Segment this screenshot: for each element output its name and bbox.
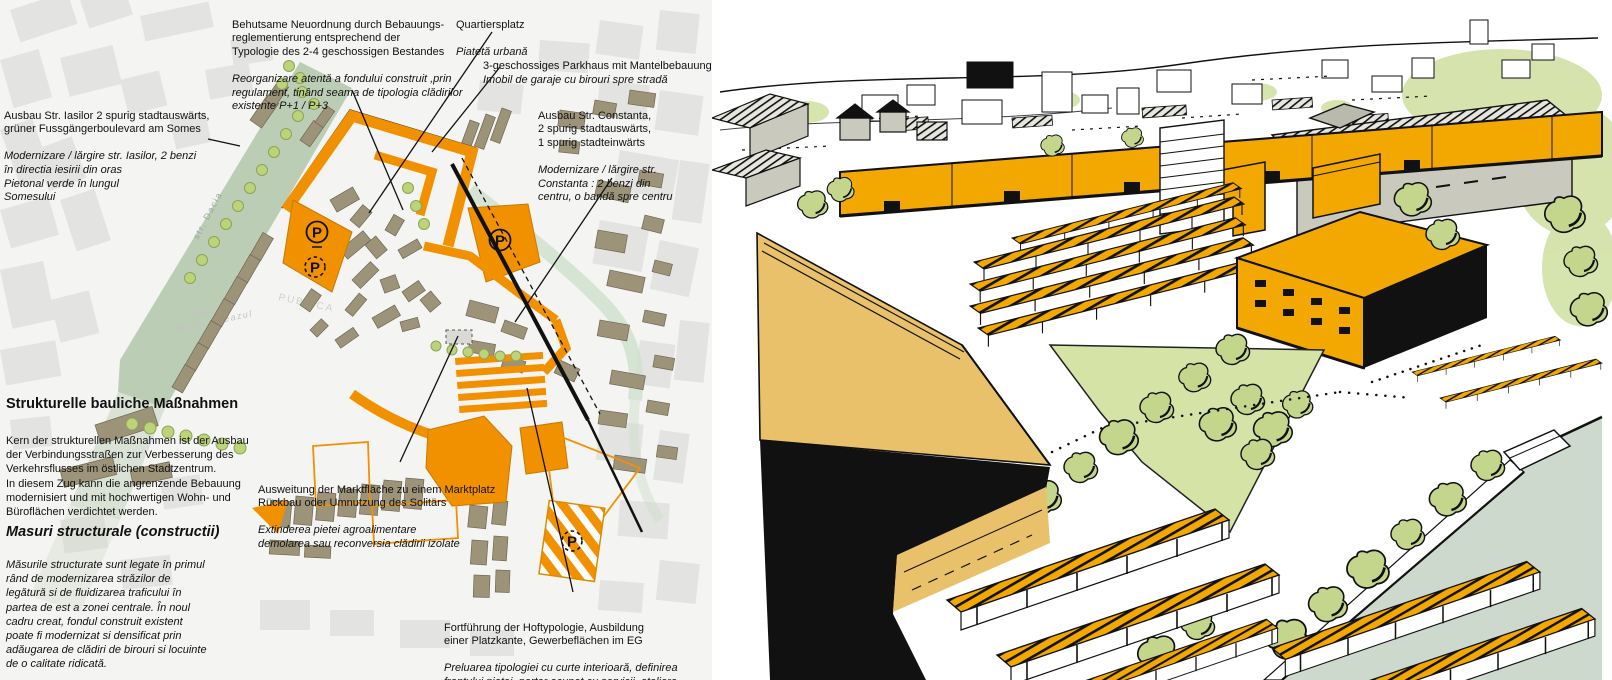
map-panel: str. Dacia piata Mihai Viteazul PUBLICA [0, 0, 712, 680]
svg-text:P: P [312, 225, 322, 242]
annotation-parkhaus-de: 3-geschossiges Parkhaus mit Mantelbebauu… [483, 60, 712, 74]
annotation-marktplatz-de: Ausweitung der Marktfläche zu einem Mark… [258, 484, 518, 511]
perspective-sketch-svg [712, 0, 1612, 680]
section-heading-ro: Masuri structurale (constructii) [6, 524, 220, 540]
annotation-reorg-ro: Reorganizare atentă a fondului construit… [232, 73, 484, 114]
annotation-reorg-de: Behutsame Neuordnung durch Bebauungs- re… [232, 19, 484, 60]
annotation-marktplatz: Ausweitung der Marktfläche zu einem Mark… [258, 470, 518, 565]
svg-text:P: P [495, 233, 505, 250]
annotation-marktplatz-ro: Extinderea pietei agroalimentare demolar… [258, 524, 518, 551]
urban-plan-sheet: str. Dacia piata Mihai Viteazul PUBLICA [0, 0, 1612, 680]
annotation-hoftypologie-ro: Preluarea tipologiei cu curte interioară… [444, 662, 712, 680]
annotation-reorg: Behutsame Neuordnung durch Bebauungs- re… [232, 5, 484, 127]
section-body-de: Kern der strukturellen Maßnahmen ist der… [6, 434, 256, 519]
annotation-iasilor-ro: Modernizare / lărgire str. Iasilor, 2 be… [4, 150, 234, 204]
annotation-parkhaus-ro: Imobil de garaje cu birouri spre stradă [483, 74, 712, 88]
section-heading-de: Strukturelle bauliche Maßnahmen [6, 396, 238, 412]
annotation-quartiersplatz-de: Quartiersplatz [456, 19, 606, 33]
section-body-ro: Măsurile structurate sunt legate în prim… [6, 558, 246, 672]
svg-text:P: P [567, 534, 577, 551]
annotation-constanta: Ausbau Str. Constanta, 2 spurig stadtaus… [538, 96, 708, 218]
annotation-iasilor-de: Ausbau Str. Iasilor 2 spurig stadtauswär… [4, 110, 234, 137]
perspective-sketch-panel [712, 0, 1612, 680]
annotation-parkhaus: 3-geschossiges Parkhaus mit Mantelbebauu… [483, 60, 712, 87]
svg-text:P: P [310, 260, 320, 277]
annotation-hoftypologie: Fortführung der Hoftypologie, Ausbildung… [444, 608, 712, 680]
dashed-parcel [446, 330, 472, 344]
annotation-constanta-de: Ausbau Str. Constanta, 2 spurig stadtaus… [538, 110, 708, 151]
annotation-quartiersplatz-ro: Piatetă urbană [456, 46, 606, 60]
annotation-iasilor: Ausbau Str. Iasilor 2 spurig stadtauswär… [4, 96, 234, 218]
annotation-constanta-ro: Modernizare / lărgire str. Constanta : 2… [538, 164, 708, 205]
annotation-hoftypologie-de: Fortführung der Hoftypologie, Ausbildung… [444, 622, 712, 649]
